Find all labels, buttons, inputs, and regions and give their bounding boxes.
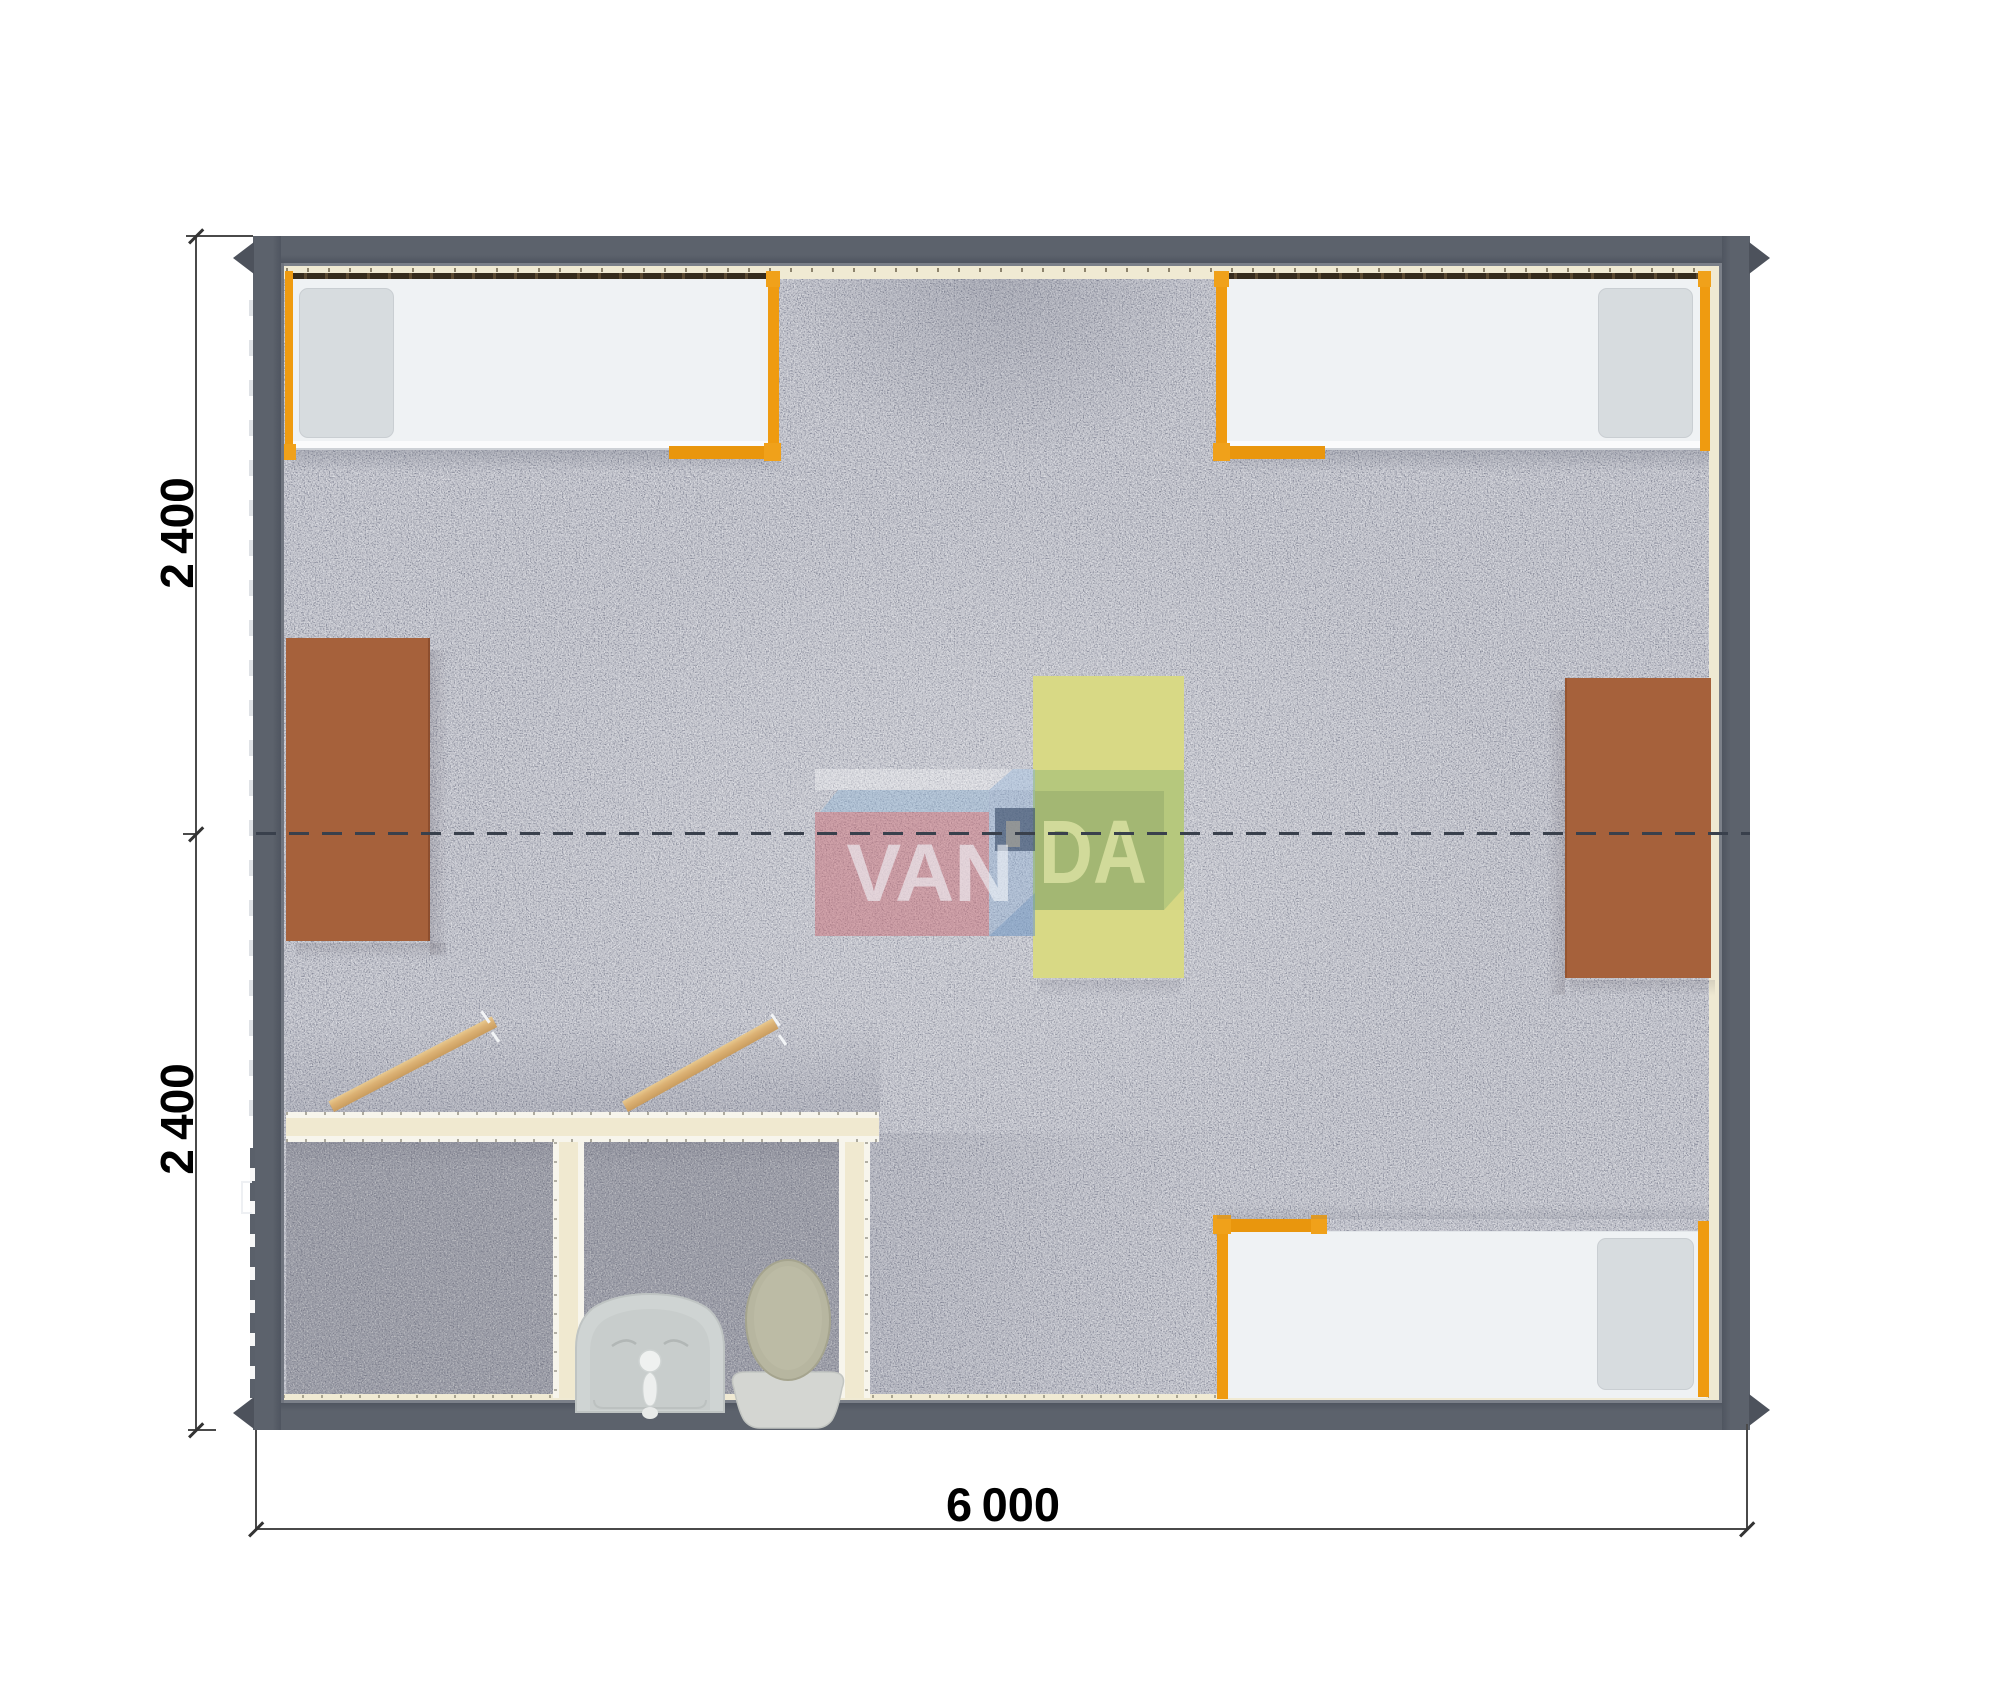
svg-text:VAN: VAN (847, 828, 1014, 919)
svg-text:DA: DA (1039, 803, 1147, 903)
